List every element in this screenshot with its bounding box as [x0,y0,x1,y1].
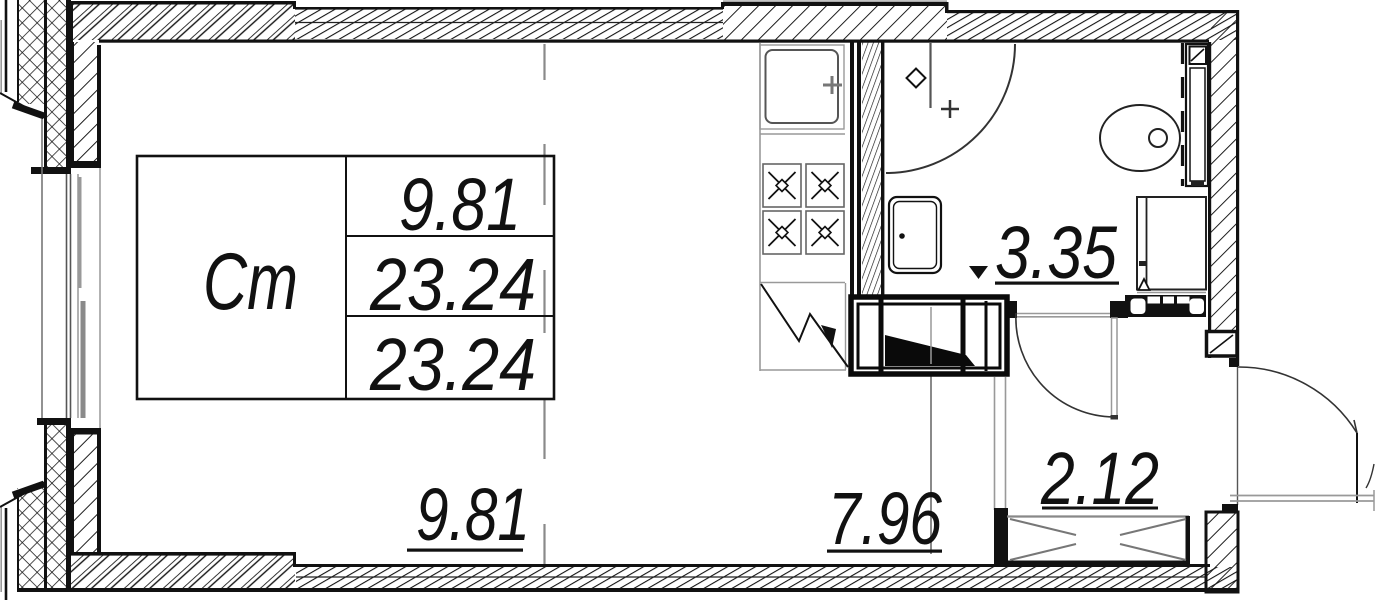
svg-text:23.24: 23.24 [369,323,536,406]
svg-text:Ст: Ст [203,237,298,327]
svg-text:9.81: 9.81 [399,163,521,246]
svg-text:9.81: 9.81 [416,473,530,556]
svg-text:7.96: 7.96 [828,477,943,560]
svg-text:23.24: 23.24 [369,243,536,326]
